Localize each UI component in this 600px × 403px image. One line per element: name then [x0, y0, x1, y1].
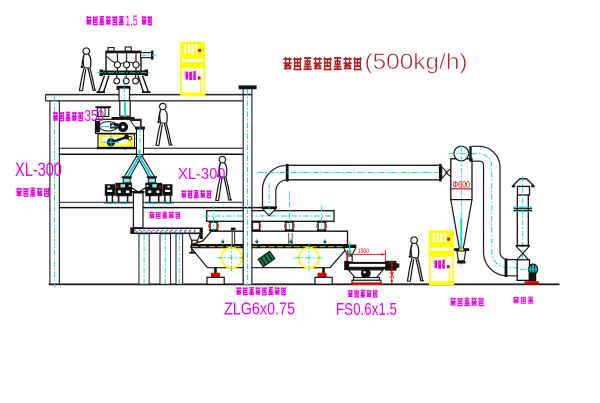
- svg-text:345: 345: [389, 267, 396, 279]
- svg-text:(500kg/h): (500kg/h): [365, 49, 468, 74]
- svg-text:350: 350: [85, 108, 105, 125]
- svg-text:ZLG6x0.75: ZLG6x0.75: [224, 299, 295, 319]
- svg-text:XL-300: XL-300: [178, 166, 226, 183]
- svg-text:XL-300: XL-300: [15, 160, 62, 181]
- svg-text:1.5: 1.5: [125, 13, 138, 30]
- svg-text:Φ600: Φ600: [453, 180, 471, 190]
- svg-text:1500: 1500: [358, 248, 370, 255]
- svg-text:FS0.6x1.5: FS0.6x1.5: [336, 299, 397, 319]
